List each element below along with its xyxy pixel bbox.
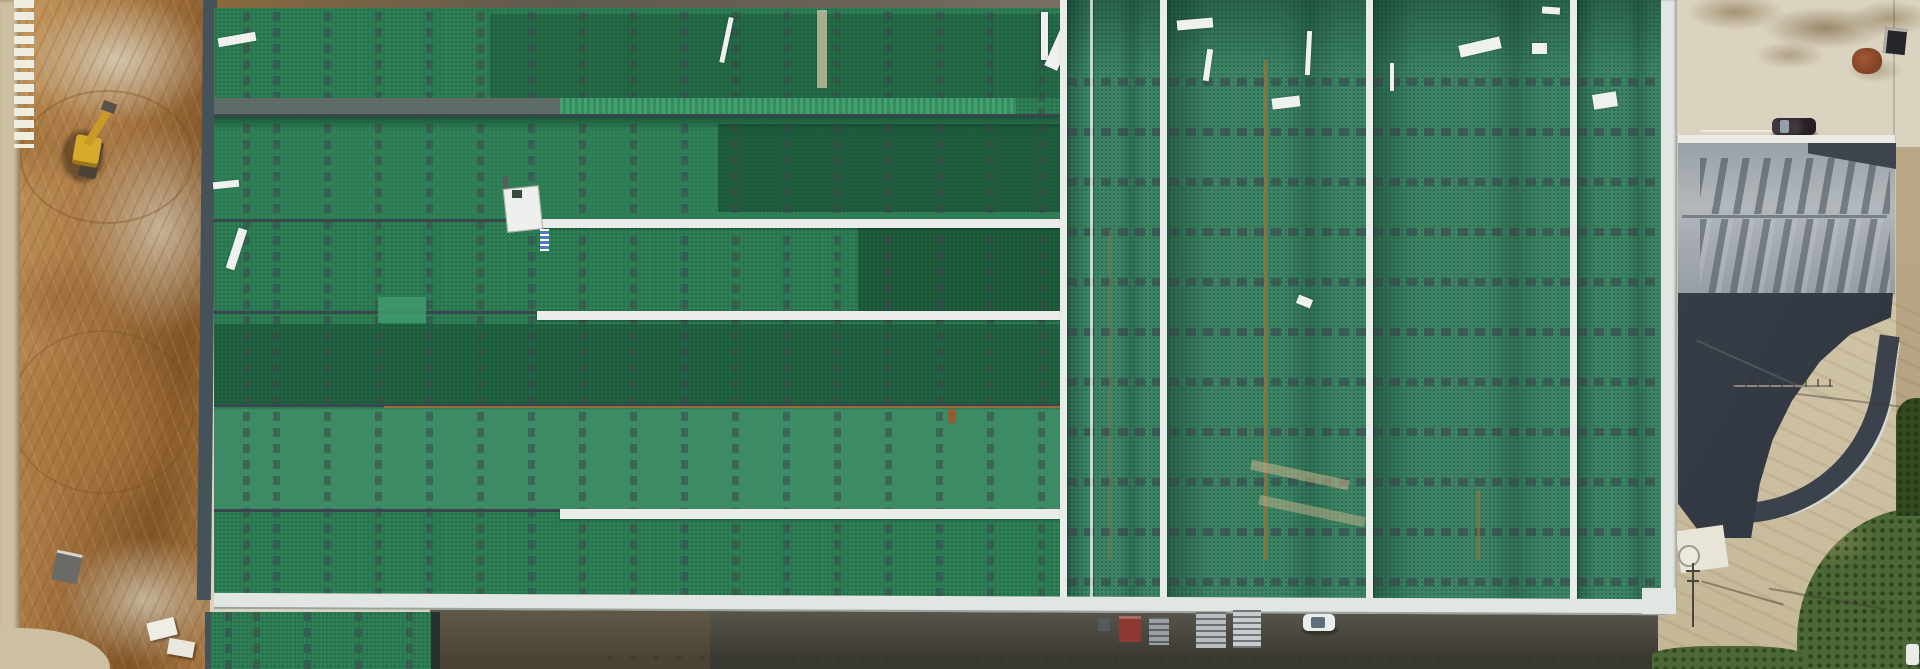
ridge-cap-white-5 [560, 509, 1060, 519]
blue-tag [540, 229, 549, 251]
debris [1041, 12, 1048, 60]
rust-pile [1852, 48, 1882, 74]
roof-hatch-unit [503, 185, 543, 233]
ridge-ribbed-band [560, 98, 1016, 114]
roof-east-edge-band [1661, 0, 1677, 603]
ridge-shadow-1 [214, 117, 1060, 130]
dark-car [1772, 118, 1816, 135]
ridge-line-5 [214, 509, 564, 512]
panel-seam-white-thin [1090, 0, 1093, 603]
white-vehicle-partial [1906, 644, 1919, 665]
panel-seam-white [1570, 0, 1577, 603]
rust-line [384, 406, 1060, 408]
eave-corner-block [1642, 588, 1676, 614]
guardrail-posts [1733, 379, 1833, 387]
dark-car-windshield [1780, 120, 1789, 133]
pallet-stack [1233, 610, 1261, 648]
annex-vent-strips [205, 612, 437, 669]
yard-joint-line [1893, 0, 1895, 147]
vegetation-bottom-patch [1652, 646, 1804, 669]
power-pole [1692, 563, 1694, 627]
annex-east-edge [431, 612, 440, 669]
pole-crossarm [1686, 570, 1700, 572]
pole-crossarm [1687, 580, 1699, 582]
dark-box [1098, 618, 1110, 631]
pallet-stack [1149, 617, 1169, 645]
veg-strip-bottom [600, 650, 1650, 669]
round-tank [1678, 545, 1700, 567]
vegetation-right-strip [1896, 398, 1920, 516]
panel-seam-white [1366, 0, 1373, 603]
ridge-line-2 [214, 219, 514, 222]
panel-seam-white [1060, 0, 1067, 603]
track-arc [10, 330, 194, 494]
debris [1390, 63, 1394, 91]
gray-roof-ridge-line [1682, 215, 1887, 218]
annex-west-edge [205, 612, 211, 669]
ridge-cap-gray [214, 98, 560, 114]
ridge-cap-white-3 [537, 311, 1060, 320]
debris [1532, 43, 1547, 54]
rust-mark [948, 408, 956, 424]
ridge-cap-white-2 [510, 219, 1060, 228]
rust-streak [1109, 230, 1111, 560]
tan-gap-strip [817, 10, 827, 88]
rust-streak [1477, 490, 1480, 560]
yard-curb-line [1700, 130, 1772, 132]
panel-seam-white [1160, 0, 1167, 603]
stone-block-row [14, 0, 34, 148]
new-panel-patch [378, 297, 426, 323]
vent-shadow-row-upper [1700, 158, 1890, 214]
waste-bin [1883, 27, 1908, 55]
white-car-windows [1311, 617, 1325, 628]
red-container [1119, 616, 1141, 642]
debris [1542, 6, 1560, 14]
aerial-photo: Top-down drone photo of a large industri… [0, 0, 1920, 669]
rust-streak [1264, 60, 1267, 560]
pallet-stack [1196, 612, 1226, 648]
vent-shadow-row-lower [1700, 219, 1890, 293]
roof-hatch-detail [512, 190, 522, 198]
